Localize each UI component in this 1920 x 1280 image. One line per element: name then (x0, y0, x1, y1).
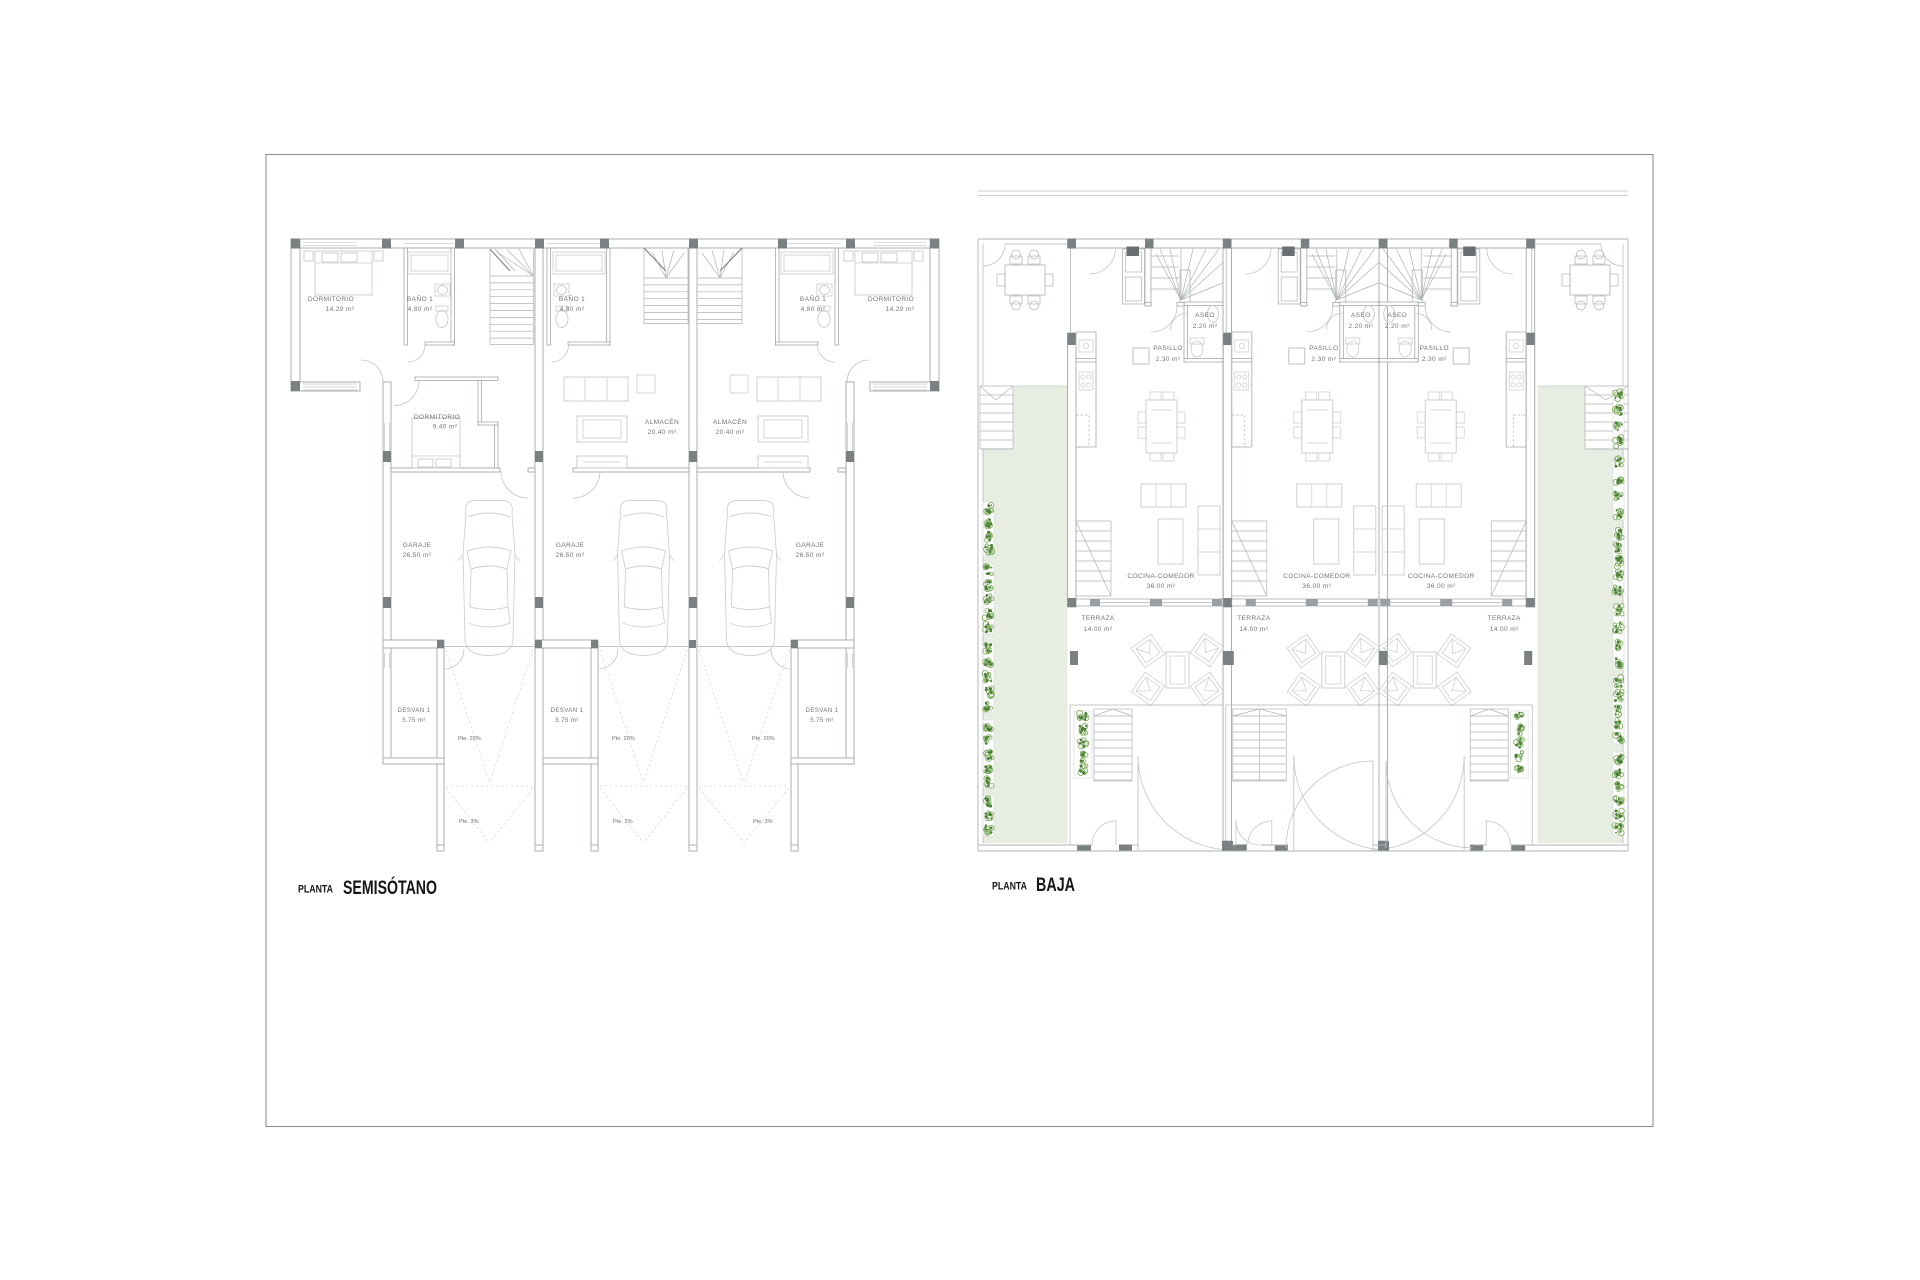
svg-text:COCINA-COMEDOR: COCINA-COMEDOR (1127, 573, 1194, 580)
svg-text:2.30 m²: 2.30 m² (1156, 356, 1181, 363)
svg-text:2.20 m²: 2.20 m² (1193, 323, 1218, 330)
svg-text:TERRAZA: TERRAZA (1237, 615, 1270, 622)
svg-text:9.40 m²: 9.40 m² (433, 424, 458, 431)
svg-text:DESVAN 1: DESVAN 1 (806, 707, 839, 714)
svg-text:14.20 m²: 14.20 m² (326, 306, 355, 313)
svg-text:ASEO: ASEO (1387, 312, 1407, 319)
svg-text:BAÑO 1: BAÑO 1 (800, 294, 826, 303)
svg-text:Pte. 3%: Pte. 3% (613, 819, 633, 825)
svg-text:GARAJE: GARAJE (556, 542, 585, 549)
svg-text:14.00 m²: 14.00 m² (1084, 626, 1113, 633)
svg-text:ASEO: ASEO (1351, 312, 1371, 319)
svg-text:BAÑO 1: BAÑO 1 (559, 294, 585, 303)
svg-text:COCINA-COMEDOR: COCINA-COMEDOR (1283, 573, 1350, 580)
svg-text:26.50 m²: 26.50 m² (796, 552, 825, 559)
svg-text:PLANTA: PLANTA (992, 881, 1027, 893)
svg-text:ASEO: ASEO (1195, 312, 1215, 319)
svg-text:20.40 m²: 20.40 m² (716, 429, 745, 436)
svg-text:Pte. 20%: Pte. 20% (752, 736, 775, 742)
svg-text:PASILLO: PASILLO (1153, 345, 1182, 352)
svg-text:4.80 m²: 4.80 m² (801, 306, 826, 313)
svg-text:20.40 m²: 20.40 m² (648, 429, 677, 436)
svg-text:2.30 m²: 2.30 m² (1422, 356, 1447, 363)
svg-text:Pte. 20%: Pte. 20% (612, 736, 635, 742)
svg-text:DORMITORIO: DORMITORIO (308, 296, 354, 303)
svg-text:DESVAN 1: DESVAN 1 (398, 707, 431, 714)
svg-text:DORMITORIO: DORMITORIO (414, 414, 460, 421)
svg-text:ALMACÉN: ALMACÉN (713, 417, 747, 426)
svg-text:4.80 m²: 4.80 m² (560, 306, 585, 313)
svg-text:14.00 m²: 14.00 m² (1490, 626, 1519, 633)
svg-text:36.00 m²: 36.00 m² (1302, 583, 1331, 590)
svg-text:36.00 m²: 36.00 m² (1427, 583, 1456, 590)
svg-text:36.00 m²: 36.00 m² (1147, 583, 1176, 590)
svg-text:4.80 m²: 4.80 m² (408, 306, 433, 313)
svg-text:Pte. 3%: Pte. 3% (459, 819, 479, 825)
svg-text:14.20 m²: 14.20 m² (886, 306, 915, 313)
svg-text:DESVAN 1: DESVAN 1 (551, 707, 584, 714)
svg-text:BAÑO 1: BAÑO 1 (407, 294, 433, 303)
svg-text:PASILLO: PASILLO (1419, 345, 1448, 352)
svg-text:5.75 m²: 5.75 m² (810, 717, 833, 724)
svg-text:PASILLO: PASILLO (1309, 345, 1338, 352)
svg-text:ALMACÉN: ALMACÉN (645, 417, 679, 426)
svg-text:SEMISÓTANO: SEMISÓTANO (343, 875, 437, 899)
svg-text:2.20 m²: 2.20 m² (1348, 323, 1373, 330)
svg-text:PLANTA: PLANTA (298, 884, 333, 896)
svg-text:5.75 m²: 5.75 m² (555, 717, 578, 724)
svg-text:5.75 m²: 5.75 m² (402, 717, 425, 724)
svg-text:GARAJE: GARAJE (403, 542, 432, 549)
svg-text:Pte. 20%: Pte. 20% (458, 736, 481, 742)
svg-text:26.50 m²: 26.50 m² (556, 552, 585, 559)
svg-text:DORMITORIO: DORMITORIO (868, 296, 914, 303)
svg-text:Pte. 3%: Pte. 3% (753, 819, 773, 825)
svg-text:14.00 m²: 14.00 m² (1239, 626, 1268, 633)
svg-text:2.20 m²: 2.20 m² (1385, 323, 1410, 330)
svg-text:26.50 m²: 26.50 m² (403, 552, 432, 559)
svg-text:GARAJE: GARAJE (796, 542, 825, 549)
svg-text:2.30 m²: 2.30 m² (1311, 356, 1336, 363)
svg-text:TERRAZA: TERRAZA (1488, 615, 1521, 622)
svg-text:TERRAZA: TERRAZA (1081, 615, 1114, 622)
svg-text:BAJA: BAJA (1036, 874, 1075, 896)
svg-text:COCINA-COMEDOR: COCINA-COMEDOR (1408, 573, 1475, 580)
